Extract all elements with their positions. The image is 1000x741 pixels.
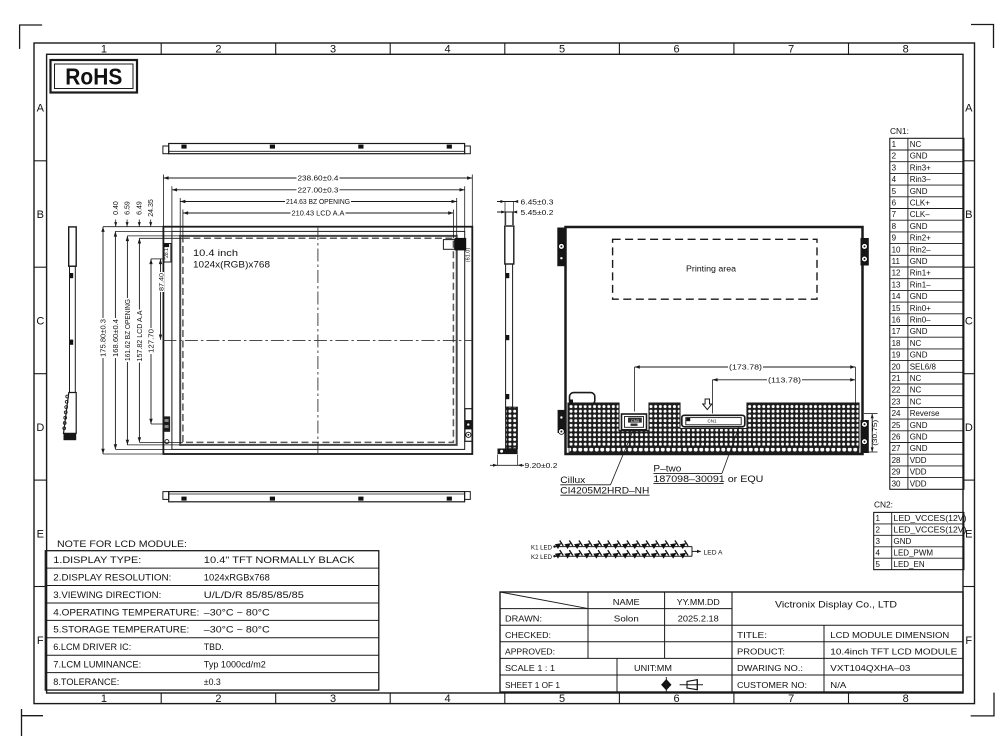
svg-text:–30°C ~ 80°C: –30°C ~ 80°C [204, 607, 270, 618]
svg-text:10: 10 [892, 245, 901, 254]
svg-text:SEL6/8: SEL6/8 [910, 362, 937, 371]
svg-text:U/L/D/R 85/85/85/85: U/L/D/R 85/85/85/85 [204, 590, 304, 601]
svg-text:GND: GND [910, 421, 928, 430]
svg-text:9: 9 [892, 234, 897, 243]
svg-text:CI4205M2HRD–NH: CI4205M2HRD–NH [560, 485, 649, 495]
svg-text:TBD.: TBD. [204, 642, 224, 653]
svg-text:Rin0–: Rin0– [910, 316, 931, 325]
svg-text:5: 5 [876, 560, 881, 569]
svg-text:±0.3: ±0.3 [204, 677, 221, 688]
svg-text:9.20±0.2: 9.20±0.2 [525, 461, 558, 470]
svg-text:23: 23 [892, 397, 901, 406]
svg-text:6.45±0.3: 6.45±0.3 [521, 197, 554, 206]
svg-text:CHECKED:: CHECKED: [505, 630, 551, 640]
svg-text:6.59: 6.59 [125, 201, 132, 215]
svg-text:NAME: NAME [613, 598, 640, 607]
svg-text:CLK+: CLK+ [910, 199, 931, 208]
svg-text:127.70: 127.70 [147, 329, 156, 353]
svg-text:CN1:: CN1: [890, 126, 909, 136]
svg-text:P–two: P–two [653, 464, 681, 474]
svg-text:5.45±0.2: 5.45±0.2 [521, 208, 554, 217]
svg-text:4.OPERATING TEMPERATURE:: 4.OPERATING TEMPERATURE: [53, 607, 199, 618]
svg-text:168.60±0.4: 168.60±0.4 [111, 319, 120, 357]
svg-text:F: F [965, 635, 972, 647]
svg-text:YY.MM.DD: YY.MM.DD [677, 598, 720, 607]
svg-text:4: 4 [444, 44, 450, 56]
svg-text:28.1: 28.1 [164, 248, 170, 258]
svg-text:DWARING NO.:: DWARING NO.: [737, 663, 803, 673]
svg-text:B: B [37, 209, 44, 221]
svg-text:2: 2 [215, 693, 221, 705]
svg-text:13: 13 [892, 280, 901, 289]
svg-text:19: 19 [892, 351, 901, 360]
svg-text:2: 2 [215, 44, 221, 56]
svg-text:GND: GND [910, 433, 928, 442]
svg-text:27: 27 [892, 444, 901, 453]
svg-text:161.62 BZ OPENING: 161.62 BZ OPENING [123, 299, 132, 361]
svg-text:(113.78): (113.78) [768, 375, 802, 384]
svg-text:LED_VCCES(12V): LED_VCCES(12V) [894, 526, 967, 535]
svg-text:10.4inch TFT LCD MODULE: 10.4inch TFT LCD MODULE [830, 647, 957, 657]
svg-text:3: 3 [330, 693, 336, 705]
svg-text:87.40: 87.40 [158, 273, 165, 291]
svg-text:175.80±0.3: 175.80±0.3 [99, 319, 108, 357]
svg-text:E: E [37, 528, 44, 540]
svg-text:3: 3 [330, 44, 336, 56]
svg-text:8: 8 [903, 44, 909, 56]
svg-text:214.63 BZ OPENING: 214.63 BZ OPENING [286, 197, 350, 206]
svg-text:20: 20 [892, 362, 901, 371]
svg-text:D: D [965, 422, 973, 434]
svg-text:6: 6 [674, 44, 680, 56]
svg-text:GND: GND [910, 187, 928, 196]
svg-text:6: 6 [674, 693, 680, 705]
svg-text:GND: GND [910, 351, 928, 360]
svg-text:3: 3 [892, 163, 897, 172]
svg-text:–30°C ~ 80°C: –30°C ~ 80°C [204, 625, 270, 636]
svg-text:APPROVED:: APPROVED: [505, 647, 555, 657]
svg-text:4: 4 [876, 548, 881, 557]
svg-text:UNIT:MM: UNIT:MM [634, 663, 672, 673]
svg-text:VDD: VDD [910, 468, 927, 477]
svg-text:4: 4 [892, 175, 897, 184]
svg-text:2025.2.18: 2025.2.18 [678, 613, 719, 623]
svg-text:SHEET 1 OF 1: SHEET 1 OF 1 [505, 680, 560, 690]
svg-text:GND: GND [910, 444, 928, 453]
svg-text:Rin3–: Rin3– [910, 175, 931, 184]
svg-text:17: 17 [892, 327, 901, 336]
svg-text:24: 24 [892, 409, 901, 418]
svg-text:VDD: VDD [910, 456, 927, 465]
svg-text:210.43 LCD A.A: 210.43 LCD A.A [292, 209, 345, 218]
svg-text:15: 15 [892, 304, 901, 313]
svg-text:PRODUCT:: PRODUCT: [737, 647, 785, 657]
svg-text:VXT104QXHA–03: VXT104QXHA–03 [830, 663, 910, 673]
svg-text:2: 2 [892, 152, 897, 161]
svg-text:1: 1 [101, 44, 107, 56]
svg-text:Cillux: Cillux [560, 475, 586, 485]
svg-text:1: 1 [101, 693, 107, 705]
svg-text:LED_PWM: LED_PWM [894, 548, 934, 557]
svg-text:26: 26 [892, 433, 901, 442]
svg-text:RoHS: RoHS [65, 64, 122, 90]
svg-text:CN2:: CN2: [874, 500, 893, 510]
svg-text:Printing area: Printing area [686, 264, 737, 273]
svg-text:12: 12 [892, 269, 901, 278]
svg-text:NOTE FOR LCD MODULE:: NOTE FOR LCD MODULE: [57, 539, 187, 550]
svg-text:8: 8 [892, 222, 897, 231]
svg-text:NC: NC [910, 140, 922, 149]
svg-text:Rin2–: Rin2– [910, 245, 931, 254]
svg-text:LCD MODULE DIMENSION: LCD MODULE DIMENSION [830, 630, 949, 640]
svg-text:C: C [965, 315, 973, 327]
svg-text:8: 8 [903, 693, 909, 705]
svg-text:6.49: 6.49 [137, 201, 144, 215]
svg-text:2.DISPLAY RESOLUTION:: 2.DISPLAY RESOLUTION: [53, 572, 171, 583]
svg-text:(61.0): (61.0) [465, 248, 471, 263]
svg-text:Rin1+: Rin1+ [910, 269, 931, 278]
svg-text:CLK–: CLK– [910, 210, 931, 219]
svg-text:Rin2+: Rin2+ [910, 234, 931, 243]
svg-text:6.LCM DRIVER IC:: 6.LCM DRIVER IC: [53, 642, 131, 653]
svg-text:1.DISPLAY TYPE:: 1.DISPLAY TYPE: [53, 555, 141, 566]
svg-text:Typ 1000cd/m2: Typ 1000cd/m2 [204, 660, 266, 671]
svg-text:Rin3+: Rin3+ [910, 163, 931, 172]
svg-text:7: 7 [788, 693, 794, 705]
svg-text:Rin0+: Rin0+ [910, 304, 931, 313]
svg-text:5: 5 [559, 44, 565, 56]
svg-text:8.TOLERANCE:: 8.TOLERANCE: [53, 677, 119, 688]
svg-text:C: C [36, 315, 44, 327]
svg-text:22: 22 [892, 386, 901, 395]
svg-text:10.4" TFT NORMALLY BLACK: 10.4" TFT NORMALLY BLACK [204, 555, 356, 566]
svg-text:VDD: VDD [910, 479, 927, 488]
svg-text:29: 29 [892, 468, 901, 477]
svg-text:18: 18 [892, 339, 901, 348]
svg-text:5.STORAGE TEMPERATURE:: 5.STORAGE TEMPERATURE: [53, 625, 189, 636]
svg-text:7: 7 [788, 44, 794, 56]
svg-text:227.00±0.3: 227.00±0.3 [298, 185, 339, 194]
svg-text:5: 5 [892, 187, 897, 196]
svg-text:D: D [36, 422, 44, 434]
svg-text:NC: NC [910, 339, 922, 348]
svg-text:GND: GND [910, 257, 928, 266]
svg-text:1024xRGBx768: 1024xRGBx768 [204, 572, 270, 583]
svg-text:28: 28 [892, 456, 901, 465]
svg-text:30: 30 [892, 479, 901, 488]
svg-text:CUSTOMER NO:: CUSTOMER NO: [737, 680, 807, 690]
svg-text:NC: NC [910, 374, 922, 383]
svg-text:N/A: N/A [830, 680, 846, 690]
svg-text:Victronix Display Co., LTD: Victronix Display Co., LTD [775, 600, 897, 611]
svg-text:7: 7 [892, 210, 897, 219]
svg-text:GND: GND [910, 292, 928, 301]
svg-text:A: A [37, 103, 45, 115]
svg-text:2: 2 [876, 526, 881, 535]
svg-text:5: 5 [559, 693, 565, 705]
svg-text:GND: GND [894, 537, 912, 546]
svg-text:4: 4 [444, 693, 450, 705]
svg-text:24.35: 24.35 [148, 199, 155, 217]
svg-text:CN1: CN1 [707, 418, 716, 423]
svg-text:K1 LED: K1 LED [531, 544, 552, 551]
svg-text:157.82 LCD A.A: 157.82 LCD A.A [135, 311, 144, 362]
svg-text:10.4 inch: 10.4 inch [193, 248, 238, 259]
svg-text:6: 6 [892, 199, 897, 208]
svg-text:LED_EN: LED_EN [894, 560, 925, 569]
svg-text:K2 LED: K2 LED [531, 554, 552, 561]
svg-text:(30.75): (30.75) [872, 420, 879, 446]
svg-text:3.VIEWING DIRECTION:: 3.VIEWING DIRECTION: [53, 590, 161, 601]
svg-text:Reverse: Reverse [910, 409, 940, 418]
svg-text:0.40: 0.40 [113, 201, 120, 215]
svg-text:NC: NC [910, 386, 922, 395]
svg-text:GND: GND [910, 222, 928, 231]
svg-text:3: 3 [876, 537, 881, 546]
svg-text:CN3: CN3 [631, 418, 640, 423]
svg-text:TITLE:: TITLE: [737, 630, 767, 640]
svg-text:F: F [37, 635, 44, 647]
svg-text:LED A: LED A [704, 549, 724, 556]
svg-text:1: 1 [876, 514, 881, 523]
svg-text:238.60±0.4: 238.60±0.4 [298, 174, 339, 183]
svg-text:1: 1 [892, 140, 897, 149]
svg-text:LED_VCCES(12V): LED_VCCES(12V) [894, 514, 967, 523]
svg-text:GND: GND [910, 327, 928, 336]
svg-text:NC: NC [910, 397, 922, 406]
svg-text:Rin1–: Rin1– [910, 280, 931, 289]
svg-text:21: 21 [892, 374, 901, 383]
svg-text:SCALE 1 : 1: SCALE 1 : 1 [505, 663, 555, 673]
svg-text:Solon: Solon [614, 613, 639, 623]
svg-text:1024x(RGB)x768: 1024x(RGB)x768 [193, 259, 270, 270]
svg-text:7.LCM LUMINANCE:: 7.LCM LUMINANCE: [53, 660, 141, 671]
svg-text:16: 16 [892, 316, 901, 325]
svg-text:25: 25 [892, 421, 901, 430]
svg-text:DRAWN:: DRAWN: [505, 613, 542, 623]
svg-text:11: 11 [892, 257, 901, 266]
svg-text:187098–30091 or EQU: 187098–30091 or EQU [653, 474, 763, 484]
svg-text:B: B [965, 209, 972, 221]
svg-text:A: A [965, 103, 973, 115]
svg-text:GND: GND [910, 152, 928, 161]
svg-text:(173.78): (173.78) [729, 363, 763, 372]
svg-text:14: 14 [892, 292, 901, 301]
